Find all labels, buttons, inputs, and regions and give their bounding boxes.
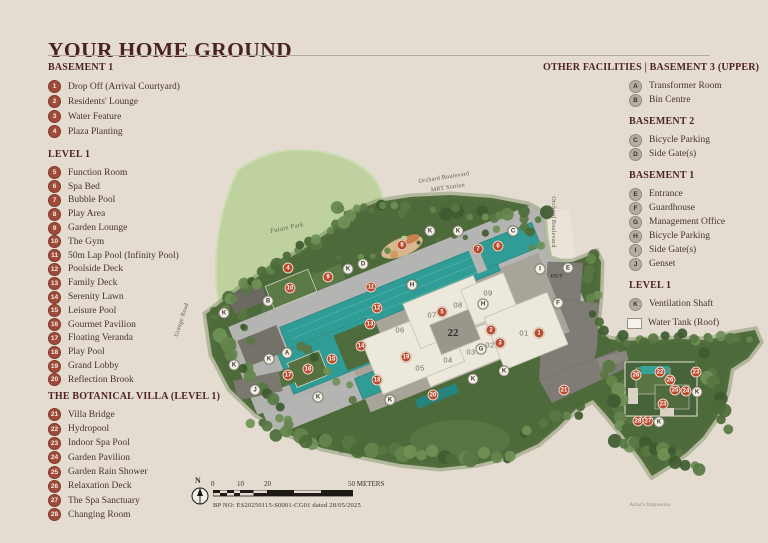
map-marker-K: K xyxy=(654,417,665,428)
number-badge: 14 xyxy=(48,291,61,304)
unit-label-07: 07 xyxy=(427,311,436,320)
legend-item: 15Leisure Pool xyxy=(48,304,220,318)
legend-label: Floating Veranda xyxy=(68,333,133,343)
legend-label: Ventilation Shaft xyxy=(649,299,713,309)
map-marker-18: 18 xyxy=(372,375,383,386)
map-marker-H: H xyxy=(407,280,418,291)
legend-label: Reflection Brook xyxy=(68,375,134,385)
legend-label: The Spa Sanctuary xyxy=(68,496,140,506)
letter-badge: C xyxy=(629,134,642,147)
unit-label-03: 03 xyxy=(466,348,475,357)
legend-label: Water Feature xyxy=(68,112,121,122)
map-marker-B: B xyxy=(263,296,274,307)
map-marker-4: 4 xyxy=(283,263,294,274)
legend-item: 8Play Area xyxy=(48,207,220,221)
letter-badge: I xyxy=(629,244,642,257)
letter-badge: K xyxy=(629,298,642,311)
legend-label: Poolside Deck xyxy=(68,264,123,274)
legend-item: 9Garden Lounge xyxy=(48,221,220,235)
water-tank-swatch xyxy=(627,318,642,329)
legend-label: Indoor Spa Pool xyxy=(68,438,130,448)
water-tank-item: Water Tank (Roof) xyxy=(629,316,759,330)
block-label: 22 xyxy=(448,327,459,339)
legend-item: 2Residents' Lounge xyxy=(48,94,220,109)
map-marker-9: 9 xyxy=(323,272,334,283)
legend-label: Transformer Room xyxy=(649,81,722,91)
legend-label: Management Office xyxy=(649,217,725,227)
number-badge: 4 xyxy=(48,125,61,138)
legend-section: LEVEL 15Function Room6Spa Bed7Bubble Poo… xyxy=(48,149,220,387)
map-marker-26: 26 xyxy=(631,370,642,381)
legend-item: GManagement Office xyxy=(629,215,759,229)
map-marker-13: 13 xyxy=(365,319,376,330)
map-marker-24: 24 xyxy=(681,386,692,397)
map-marker-K: K xyxy=(468,374,479,385)
map-marker-16: 16 xyxy=(303,364,314,375)
map-marker-K: K xyxy=(499,366,510,377)
legend-item: JGenset xyxy=(629,257,759,271)
legend-item: 22Hydropool xyxy=(48,422,220,436)
map-marker-J: J xyxy=(250,385,261,396)
number-badge: 25 xyxy=(48,466,61,479)
map-marker-21: 21 xyxy=(559,385,570,396)
map-marker-23: 23 xyxy=(658,399,669,410)
legend-item: 14Serenity Lawn xyxy=(48,290,220,304)
letter-badge: H xyxy=(629,230,642,243)
number-badge: 9 xyxy=(48,222,61,235)
legend-item: KVentilation Shaft xyxy=(629,297,759,311)
legend-label: Villa Bridge xyxy=(68,410,115,420)
artists-impression-note: Artist's Impression xyxy=(610,502,690,508)
number-badge: 19 xyxy=(48,360,61,373)
legend-item: 18Play Pool xyxy=(48,345,220,359)
map-marker-7: 7 xyxy=(473,244,484,255)
map-marker-K: K xyxy=(385,395,396,406)
number-badge: 20 xyxy=(48,373,61,386)
legend-section: BASEMENT 11Drop Off (Arrival Courtyard)2… xyxy=(48,62,220,139)
letter-badge: D xyxy=(629,148,642,161)
number-badge: 10 xyxy=(48,235,61,248)
legend-label: Family Deck xyxy=(68,278,117,288)
map-marker-20: 20 xyxy=(428,390,439,401)
number-badge: 22 xyxy=(48,423,61,436)
map-marker-5: 5 xyxy=(437,307,448,318)
number-badge: 1 xyxy=(48,80,61,93)
map-marker-22: 22 xyxy=(655,367,666,378)
legend-item: 19Grand Lobby xyxy=(48,359,220,373)
map-marker-12: 12 xyxy=(372,303,383,314)
legend-label: Residents' Lounge xyxy=(68,97,138,107)
number-badge: 6 xyxy=(48,180,61,193)
legend-label: Play Area xyxy=(68,209,105,219)
legend-label: 50m Lap Pool (Infinity Pool) xyxy=(68,251,179,261)
legend-item: 3Water Feature xyxy=(48,109,220,124)
legend-label: Leisure Pool xyxy=(68,306,116,316)
map-marker-A: A xyxy=(282,348,293,359)
legend-label: Bubble Pool xyxy=(68,195,115,205)
number-badge: 13 xyxy=(48,277,61,290)
legend-label: Plaza Planting xyxy=(68,127,123,137)
map-marker-K: K xyxy=(343,264,354,275)
letter-badge: A xyxy=(629,80,642,93)
legend-item: FGuardhouse xyxy=(629,201,759,215)
legend-item: 7Bubble Pool xyxy=(48,194,220,208)
letter-badge: F xyxy=(629,202,642,215)
legend-item: 20Reflection Brook xyxy=(48,373,220,387)
legend-heading: LEVEL 1 xyxy=(629,280,759,291)
number-badge: 23 xyxy=(48,437,61,450)
legend-label: Grand Lobby xyxy=(68,361,119,371)
legend-label: Entrance xyxy=(649,189,683,199)
map-marker-D: D xyxy=(358,259,369,270)
scale-tick: 10 xyxy=(237,480,244,488)
legend-label: Bicycle Parking xyxy=(649,135,710,145)
legend-heading: LEVEL 1 xyxy=(48,149,220,160)
map-marker-15: 15 xyxy=(327,354,338,365)
number-badge: 26 xyxy=(48,480,61,493)
scale-tick: 0 xyxy=(211,480,215,488)
number-badge: 3 xyxy=(48,110,61,123)
map-marker-K: K xyxy=(692,387,703,398)
legend-item: 17Floating Veranda xyxy=(48,332,220,346)
number-badge: 21 xyxy=(48,408,61,421)
legend-item: HBicycle Parking xyxy=(629,229,759,243)
number-badge: 8 xyxy=(48,208,61,221)
legend-item: 16Gourmet Pavilion xyxy=(48,318,220,332)
number-badge: 11 xyxy=(48,249,61,262)
legend-item: 12Poolside Deck xyxy=(48,263,220,277)
number-badge: 5 xyxy=(48,166,61,179)
legend-label: The Gym xyxy=(68,237,104,247)
map-marker-K: K xyxy=(264,354,275,365)
number-badge: 18 xyxy=(48,346,61,359)
number-badge: 28 xyxy=(48,508,61,521)
letter-badge: J xyxy=(629,258,642,271)
legend-item: 24Garden Pavilion xyxy=(48,451,220,465)
unit-label-02: 02 xyxy=(485,341,494,350)
unit-label-04: 04 xyxy=(443,356,452,365)
legend-label: Garden Pavilion xyxy=(68,453,130,463)
legend-item: 10The Gym xyxy=(48,235,220,249)
legend-item: 1Drop Off (Arrival Courtyard) xyxy=(48,79,220,94)
legend-label: Changing Room xyxy=(68,510,131,520)
legend-label: Gourmet Pavilion xyxy=(68,320,136,330)
legend-item: DSide Gate(s) xyxy=(629,147,759,161)
number-badge: 24 xyxy=(48,451,61,464)
site-plan-page: YOUR HOME GROUND BASEMENT 11Drop Off (Ar… xyxy=(0,0,768,543)
map-marker-11: 11 xyxy=(366,282,377,293)
legend-heading: BASEMENT 1 xyxy=(48,62,220,73)
number-badge: 27 xyxy=(48,494,61,507)
legend-heading: BASEMENT 1 xyxy=(629,170,759,181)
bp-number: BP NO: ES20250115-S0001-CG01 dated 28/05… xyxy=(213,502,361,509)
map-marker-27: 27 xyxy=(643,416,654,427)
compass-icon xyxy=(190,484,210,514)
legend-item: 21Villa Bridge xyxy=(48,408,220,422)
map-marker-2: 2 xyxy=(486,325,497,336)
number-badge: 15 xyxy=(48,304,61,317)
unit-label-05: 05 xyxy=(415,364,424,373)
legend-item: 4Plaza Planting xyxy=(48,124,220,139)
map-marker-23: 23 xyxy=(691,367,702,378)
map-marker-K: K xyxy=(229,360,240,371)
legend-label: Garden Lounge xyxy=(68,223,127,233)
number-badge: 2 xyxy=(48,95,61,108)
legend-right: OTHER FACILITIES | BASEMENT 3 (UPPER)ATr… xyxy=(543,62,759,330)
map-label: MRT Station xyxy=(431,182,466,193)
legend-label: Side Gate(s) xyxy=(649,245,696,255)
legend-left: BASEMENT 11Drop Off (Arrival Courtyard)2… xyxy=(48,62,220,532)
map-marker-19: 19 xyxy=(401,352,412,363)
scale-bar: N 0 10 20 50 METERS BP NO: ES20250115-S0… xyxy=(190,476,405,532)
legend-item: 6Spa Bed xyxy=(48,180,220,194)
legend-item: 23Indoor Spa Pool xyxy=(48,436,220,450)
map-marker-K: K xyxy=(425,226,436,237)
legend-label: Drop Off (Arrival Courtyard) xyxy=(68,82,180,92)
number-badge: 7 xyxy=(48,194,61,207)
legend-label: Hydropool xyxy=(68,424,109,434)
letter-badge: E xyxy=(629,188,642,201)
legend-item: BBin Centre xyxy=(629,93,759,107)
map-marker-17: 17 xyxy=(283,370,294,381)
unit-label-08: 08 xyxy=(453,301,462,310)
legend-label: Garden Rain Shower xyxy=(68,467,148,477)
legend-label: Play Pool xyxy=(68,347,105,357)
map-marker-25: 25 xyxy=(670,385,681,396)
number-badge: 16 xyxy=(48,318,61,331)
number-badge: 12 xyxy=(48,263,61,276)
legend-label: Serenity Lawn xyxy=(68,292,124,302)
legend-item: ATransformer Room xyxy=(629,79,759,93)
legend-label: Spa Bed xyxy=(68,182,100,192)
map-marker-6: 6 xyxy=(493,241,504,252)
legend-heading: BASEMENT 2 xyxy=(629,116,759,127)
map-marker-K: K xyxy=(453,226,464,237)
unit-label-09: 09 xyxy=(483,289,492,298)
map-marker-8: 8 xyxy=(397,240,408,251)
legend-item: CBicycle Parking xyxy=(629,133,759,147)
title-divider xyxy=(48,55,710,56)
legend-item: ISide Gate(s) xyxy=(629,243,759,257)
legend-label: Relaxation Deck xyxy=(68,481,132,491)
letter-badge: B xyxy=(629,94,642,107)
map-marker-3: 3 xyxy=(495,338,506,349)
number-badge: 17 xyxy=(48,332,61,345)
map-marker-H: H xyxy=(478,299,489,310)
legend-item: 5Function Room xyxy=(48,166,220,180)
page-title: YOUR HOME GROUND xyxy=(48,38,292,63)
map-marker-10: 10 xyxy=(285,283,296,294)
unit-label-01: 01 xyxy=(519,329,528,338)
letter-badge: G xyxy=(629,216,642,229)
legend-label: Guardhouse xyxy=(649,203,695,213)
legend-heading: OTHER FACILITIES | BASEMENT 3 (UPPER) xyxy=(543,62,759,73)
scale-ruler xyxy=(213,490,353,497)
scale-end-label: 50 METERS xyxy=(348,480,384,488)
legend-item: 1150m Lap Pool (Infinity Pool) xyxy=(48,249,220,263)
scale-tick: 20 xyxy=(264,480,271,488)
legend-label: Genset xyxy=(649,259,675,269)
map-marker-K: K xyxy=(313,392,324,403)
legend-item: 13Family Deck xyxy=(48,276,220,290)
legend-heading: THE BOTANICAL VILLA (LEVEL 1) xyxy=(48,391,220,402)
map-label: Future Park xyxy=(270,221,305,235)
legend-item: EEntrance xyxy=(629,187,759,201)
unit-label-06: 06 xyxy=(395,326,404,335)
map-marker-C: C xyxy=(508,226,519,237)
map-marker-14: 14 xyxy=(356,341,367,352)
legend-label: Side Gate(s) xyxy=(649,149,696,159)
legend-label: Function Room xyxy=(68,168,127,178)
legend-label: Bicycle Parking xyxy=(649,231,710,241)
legend-column: ATransformer RoomBBin CentreBASEMENT 2CB… xyxy=(629,79,759,330)
legend-label: Water Tank (Roof) xyxy=(648,318,719,328)
legend-label: Bin Centre xyxy=(649,95,690,105)
